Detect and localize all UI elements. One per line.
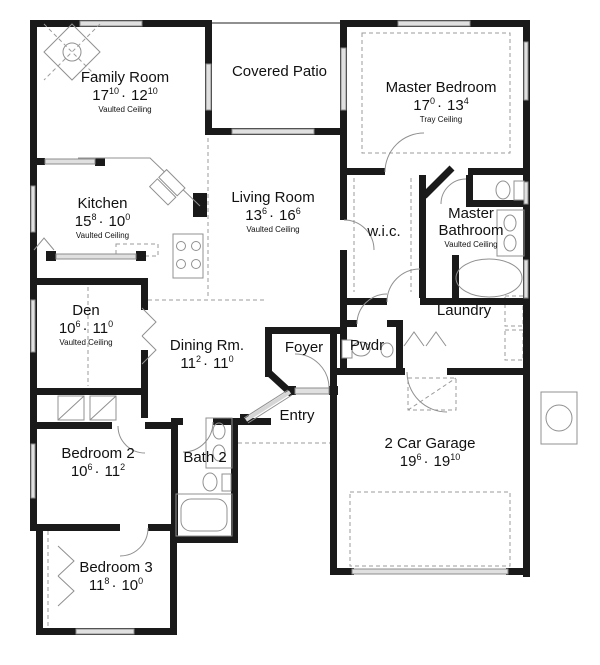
room-ceiling: Vaulted Ceiling	[40, 232, 165, 241]
room-label-powder-room: Pwdr	[339, 338, 395, 355]
laundry-bifold-icon	[404, 332, 424, 346]
room-name: Dining Rm.	[146, 338, 268, 355]
range-icon	[173, 234, 203, 278]
room-label-master-bedroom: Master Bedroom 170·134 Tray Ceiling	[356, 80, 526, 125]
room-label-laundry: Laundry	[412, 303, 516, 320]
room-dims: 112·110	[146, 356, 268, 373]
bath2-tub-icon	[176, 494, 232, 536]
room-label-foyer: Foyer	[276, 340, 332, 357]
room-ceiling: Vaulted Ceiling	[32, 339, 140, 348]
room-dims: 196·1910	[346, 454, 514, 471]
room-name: Foyer	[276, 340, 332, 357]
linen-closets-icon	[58, 396, 116, 420]
room-label-bedroom-3: Bedroom 3 118·100	[48, 560, 184, 595]
room-name: 2 Car Garage	[346, 436, 514, 453]
room-ceiling: Vaulted Ceiling	[55, 106, 195, 115]
room-name: Bath 2	[176, 450, 234, 467]
room-name: Pwdr	[339, 338, 395, 355]
room-name: Bedroom 2	[36, 446, 160, 463]
room-dims: 170·134	[356, 98, 526, 115]
master-toilet-icon	[496, 181, 524, 200]
room-label-entry: Entry	[266, 408, 328, 425]
room-label-living-room: Living Room 136·166 Vaulted Ceiling	[208, 190, 338, 235]
room-ceiling: Vaulted Ceiling	[208, 226, 338, 235]
room-name: Family Room	[55, 70, 195, 87]
room-ceiling: Vaulted Ceiling	[424, 241, 518, 250]
room-name: Laundry	[412, 303, 516, 320]
room-dims: 106·110	[32, 321, 140, 338]
water-heater-icon	[541, 392, 577, 444]
room-dims: 118·100	[48, 578, 184, 595]
room-dims: 106·112	[36, 464, 160, 481]
bath2-toilet-icon	[203, 473, 217, 491]
room-dims: 1710·1210	[55, 88, 195, 105]
room-label-kitchen: Kitchen 158·100 Vaulted Ceiling	[40, 196, 165, 241]
room-name: Den	[32, 303, 140, 320]
room-label-covered-patio: Covered Patio	[212, 64, 347, 81]
room-label-dining-room: Dining Rm. 112·110	[146, 338, 268, 373]
room-label-master-bathroom: Master Bathroom Vaulted Ceiling	[424, 206, 518, 250]
bathtub-icon	[456, 259, 522, 297]
room-name: Bedroom 3	[48, 560, 184, 577]
room-label-wic: w.i.c.	[350, 224, 418, 241]
room-name: Master Bedroom	[356, 80, 526, 97]
laundry-bifold-icon	[426, 332, 446, 346]
room-name: Covered Patio	[212, 64, 347, 81]
room-name: Entry	[266, 408, 328, 425]
room-dims: 158·100	[40, 214, 165, 231]
room-label-den: Den 106·110 Vaulted Ceiling	[32, 303, 140, 348]
den-double-door-icon	[142, 308, 156, 336]
room-name: Kitchen	[40, 196, 165, 213]
room-label-garage: 2 Car Garage 196·1910	[346, 436, 514, 471]
room-name: Master Bathroom	[424, 206, 518, 240]
room-label-bedroom-2: Bedroom 2 106·112	[36, 446, 160, 481]
floor-plan: Family Room 1710·1210 Vaulted Ceiling Co…	[0, 0, 600, 665]
room-label-bath-2: Bath 2	[176, 450, 234, 467]
room-dims: 136·166	[208, 208, 338, 225]
room-name: Living Room	[208, 190, 338, 207]
room-label-family-room: Family Room 1710·1210 Vaulted Ceiling	[55, 70, 195, 115]
room-ceiling: Tray Ceiling	[356, 116, 526, 125]
room-name: w.i.c.	[350, 224, 418, 241]
